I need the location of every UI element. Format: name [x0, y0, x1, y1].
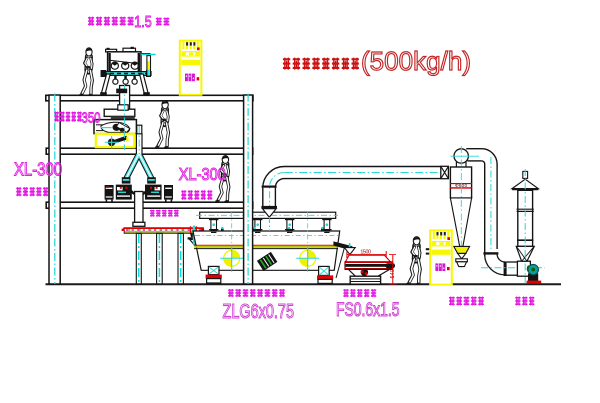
svg-text:350: 350 [82, 111, 101, 127]
svg-text:XL-300: XL-300 [179, 164, 226, 184]
svg-text:XL-300: XL-300 [14, 158, 62, 179]
svg-text:(500kg/h): (500kg/h) [361, 46, 471, 76]
svg-text:ZLG6x0.75: ZLG6x0.75 [223, 300, 295, 323]
svg-text:540: 540 [390, 269, 396, 278]
svg-text:FS0.6x1.5: FS0.6x1.5 [336, 300, 400, 321]
svg-text:1500: 1500 [360, 249, 371, 255]
svg-text:1.5: 1.5 [134, 14, 152, 31]
